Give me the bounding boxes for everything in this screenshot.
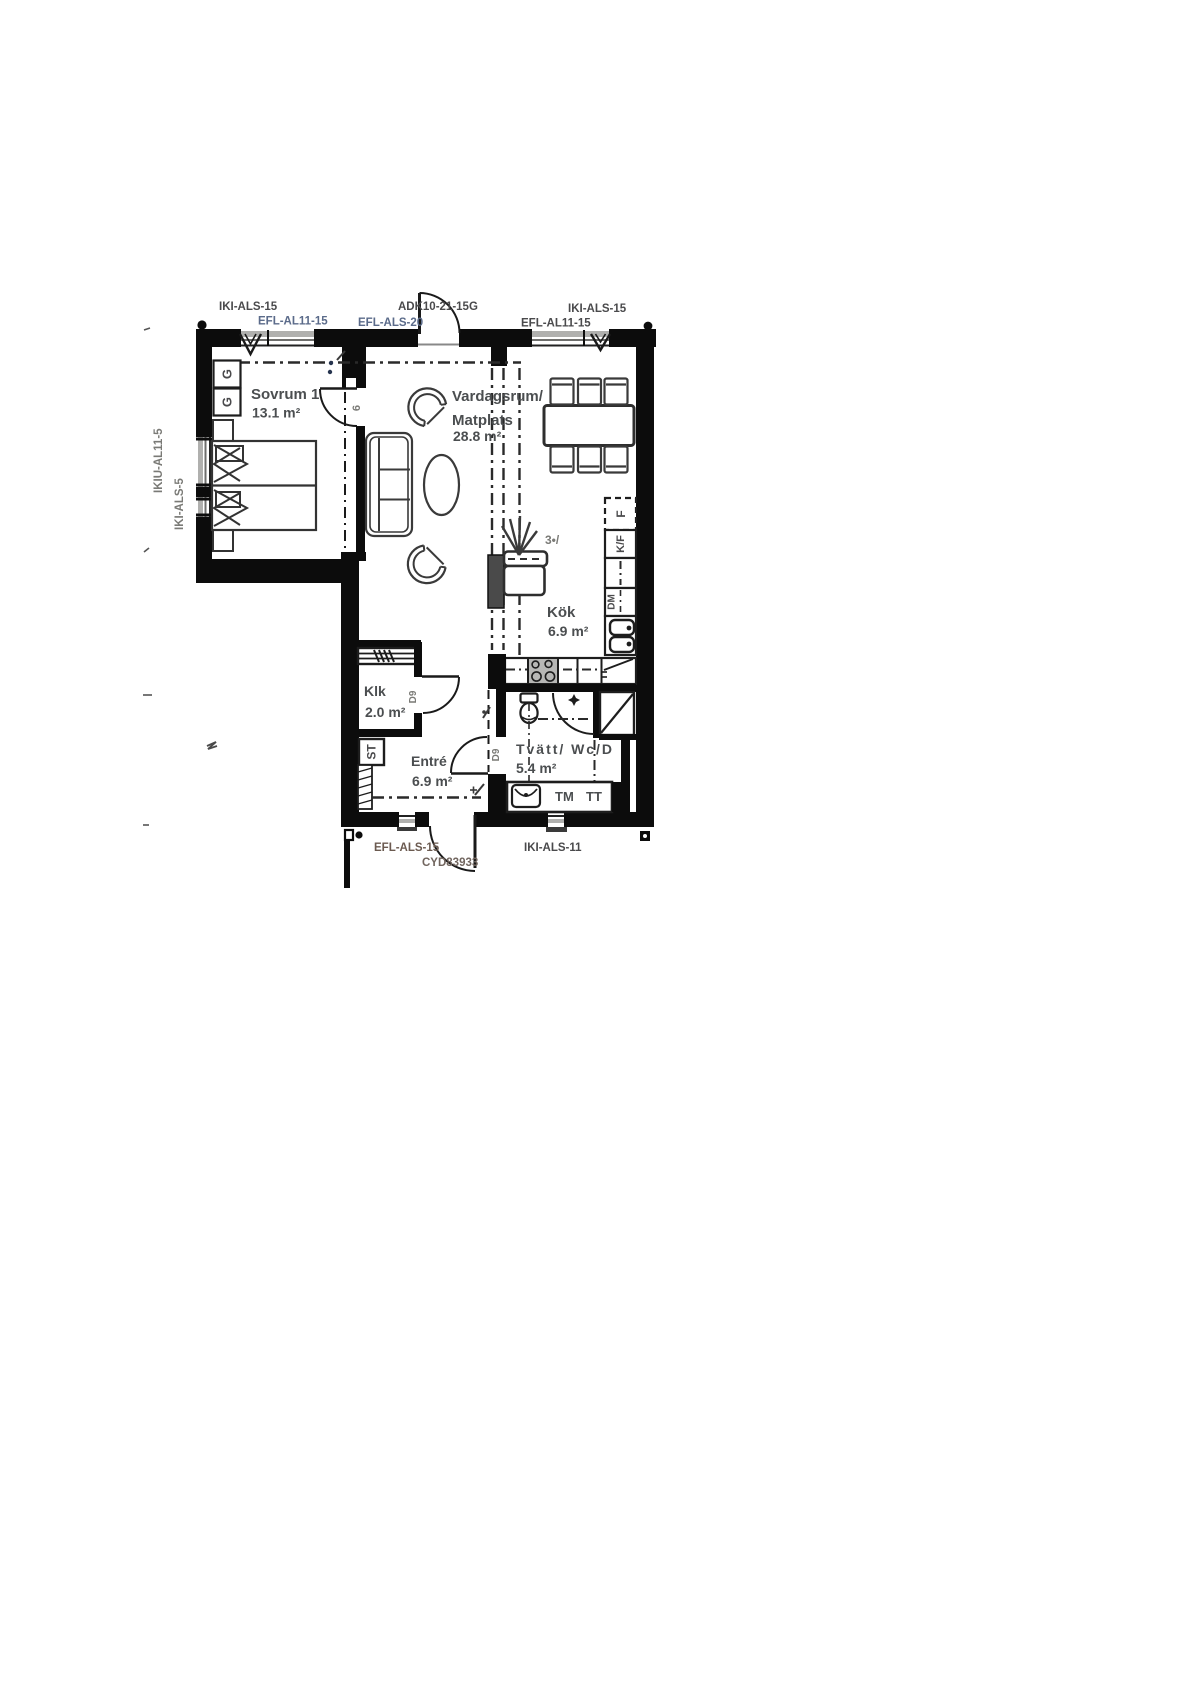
svg-text:ST: ST [365, 744, 379, 760]
svg-text:CYD83933: CYD83933 [422, 857, 478, 869]
svg-text:5.4 m²: 5.4 m² [516, 760, 557, 776]
svg-text:EFL-ALS-20: EFL-ALS-20 [358, 317, 423, 329]
svg-text:D9: D9 [408, 690, 419, 703]
svg-text:IKI-ALS-5: IKI-ALS-5 [174, 478, 186, 530]
svg-text:Klk: Klk [364, 683, 386, 699]
svg-text:IKI-ALS-15: IKI-ALS-15 [568, 303, 627, 315]
svg-text:6: 6 [351, 405, 363, 411]
svg-text:Kök: Kök [547, 604, 576, 621]
svg-text:Vardagsrum/: Vardagsrum/ [452, 388, 544, 405]
svg-text:TM: TM [555, 789, 574, 804]
svg-text:G: G [220, 369, 235, 379]
svg-text:F: F [614, 510, 628, 517]
svg-text:2.0 m²: 2.0 m² [365, 704, 406, 720]
svg-text:6.9 m²: 6.9 m² [548, 623, 589, 639]
svg-text:Matplats: Matplats [452, 412, 513, 429]
svg-text:28.8 m²: 28.8 m² [453, 428, 502, 444]
svg-text:IKIU-AL11-5: IKIU-AL11-5 [153, 428, 165, 493]
svg-text:EFL-AL11-15: EFL-AL11-15 [258, 316, 328, 328]
svg-text:D9: D9 [491, 748, 502, 761]
svg-text:3•/: 3•/ [545, 533, 560, 547]
svg-text:Entré: Entré [411, 753, 447, 769]
svg-text:IKI-ALS-11: IKI-ALS-11 [524, 842, 582, 854]
svg-text:TT: TT [586, 789, 602, 804]
svg-text:IKI-ALS-15: IKI-ALS-15 [219, 301, 278, 313]
svg-text:ADK10-21-15G: ADK10-21-15G [398, 301, 478, 313]
svg-text:DM: DM [607, 594, 618, 610]
svg-text:EFL-AL11-15: EFL-AL11-15 [521, 318, 591, 330]
svg-text:6.9 m²: 6.9 m² [412, 773, 453, 789]
svg-text:Sovrum 1: Sovrum 1 [251, 386, 319, 403]
svg-text:EFL-ALS-15: EFL-ALS-15 [374, 842, 440, 854]
svg-text:K/F: K/F [615, 535, 627, 553]
svg-text:13.1 m²: 13.1 m² [252, 405, 301, 421]
svg-text:G: G [220, 397, 235, 407]
